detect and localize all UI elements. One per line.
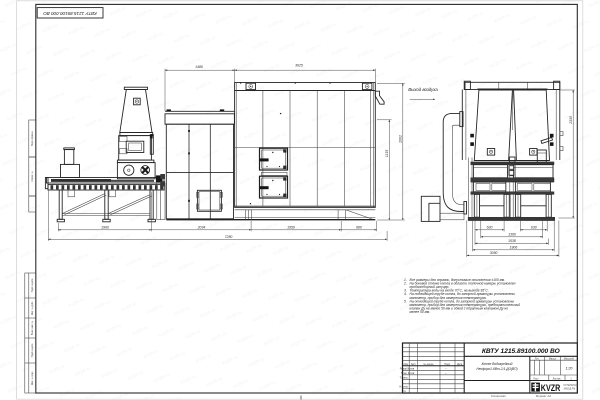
svg-text:Лит.: Лит. [535, 357, 540, 360]
svg-text:Подп. и дата: Подп. и дата [32, 343, 34, 357]
svg-text:Взам. инв. №: Взам. инв. № [31, 320, 34, 335]
svg-text:1360: 1360 [508, 232, 516, 236]
svg-text:1486: 1486 [195, 65, 203, 69]
svg-text:1538: 1538 [508, 239, 516, 243]
svg-text:2.: 2. [403, 281, 407, 285]
svg-text:Копировал: Копировал [491, 394, 506, 398]
svg-text:1906: 1906 [510, 245, 518, 249]
svg-text:Формат А2: Формат А2 [536, 394, 551, 398]
svg-text:630: 630 [531, 225, 537, 229]
svg-text:Неофорс1-КВт-2,5-ДО(ВП): Неофорс1-КВт-2,5-ДО(ВП) [476, 367, 517, 371]
svg-text:1960: 1960 [101, 225, 109, 229]
svg-text:Т.контр.: Т.контр. [400, 377, 409, 380]
svg-text:Котов: Котов [408, 372, 415, 375]
svg-text:КВТУ 1215.89100.000 ВО: КВТУ 1215.89100.000 ВО [43, 11, 97, 16]
svg-text:Масса: Масса [549, 357, 557, 360]
svg-text:5.: 5. [404, 299, 407, 303]
svg-text:630: 630 [487, 225, 493, 229]
svg-text:Н.контр.: Н.контр. [399, 386, 409, 389]
svg-text:Изм: Изм [404, 363, 409, 366]
svg-text:Котов: Котов [408, 368, 415, 371]
svg-text:2002: 2002 [399, 135, 403, 144]
svg-text:680: 680 [356, 225, 362, 229]
svg-text:1:20: 1:20 [565, 367, 572, 371]
svg-text:Подп. и дата: Подп. и дата [32, 278, 34, 292]
svg-text:KVZR: KVZR [541, 383, 561, 393]
svg-text:2034: 2034 [197, 225, 206, 229]
svg-text:Справ. №: Справ. № [31, 171, 34, 182]
svg-text:3050: 3050 [490, 251, 498, 255]
svg-text:Лист: Лист [533, 378, 539, 381]
svg-text:Инв. № дубл.: Инв. № дубл. [31, 301, 34, 316]
svg-text:менее 50 мм.: менее 50 мм. [410, 310, 431, 314]
svg-text:ЗАВОД РФ: ЗАВОД РФ [564, 388, 576, 391]
svg-text:Перв. примен.: Перв. примен. [32, 131, 34, 147]
svg-text:1950: 1950 [287, 225, 295, 229]
svg-text:Утв.: Утв. [402, 390, 407, 393]
svg-text:Лист: Лист [411, 363, 417, 366]
svg-text:КВТУ 1215.89100.000 ВО: КВТУ 1215.89100.000 ВО [482, 348, 561, 355]
svg-text:Дата: Дата [457, 363, 463, 366]
svg-text:Выход воздуха: Выход воздуха [408, 87, 438, 92]
svg-text:Пров.: Пров. [401, 372, 408, 375]
svg-text:Котел Водогрейный: Котел Водогрейный [482, 362, 513, 366]
svg-text:2335: 2335 [569, 116, 573, 125]
svg-text:№ докум.: № докум. [423, 363, 434, 366]
svg-text:Листов: Листов [553, 378, 561, 381]
svg-text:3625: 3625 [295, 64, 303, 68]
svg-text:1135: 1135 [385, 150, 389, 158]
svg-text:7280: 7280 [225, 235, 233, 239]
svg-text:КОТЕЛЬНЫЙ: КОТЕЛЬНЫЙ [564, 384, 579, 387]
svg-text:Подп.: Подп. [444, 363, 451, 366]
svg-text:4.: 4. [404, 292, 407, 296]
svg-text:Масштаб: Масштаб [564, 357, 575, 360]
svg-text:Инв. № подл.: Инв. № подл. [31, 370, 34, 385]
